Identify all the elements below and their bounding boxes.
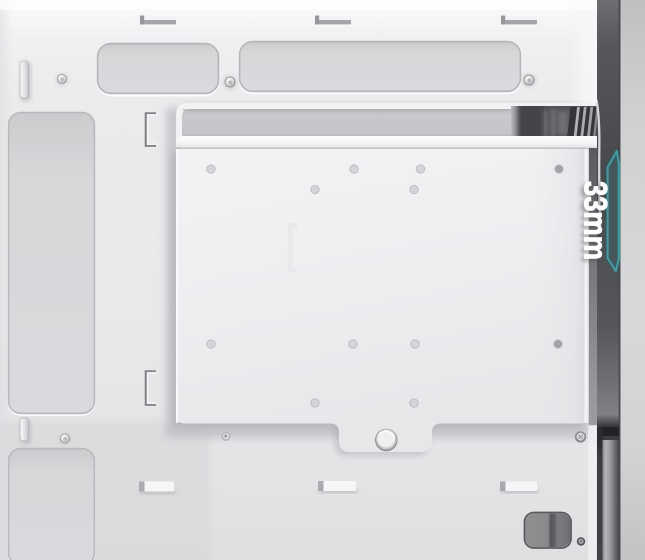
svg-text:33mm: 33mm xyxy=(577,181,613,260)
